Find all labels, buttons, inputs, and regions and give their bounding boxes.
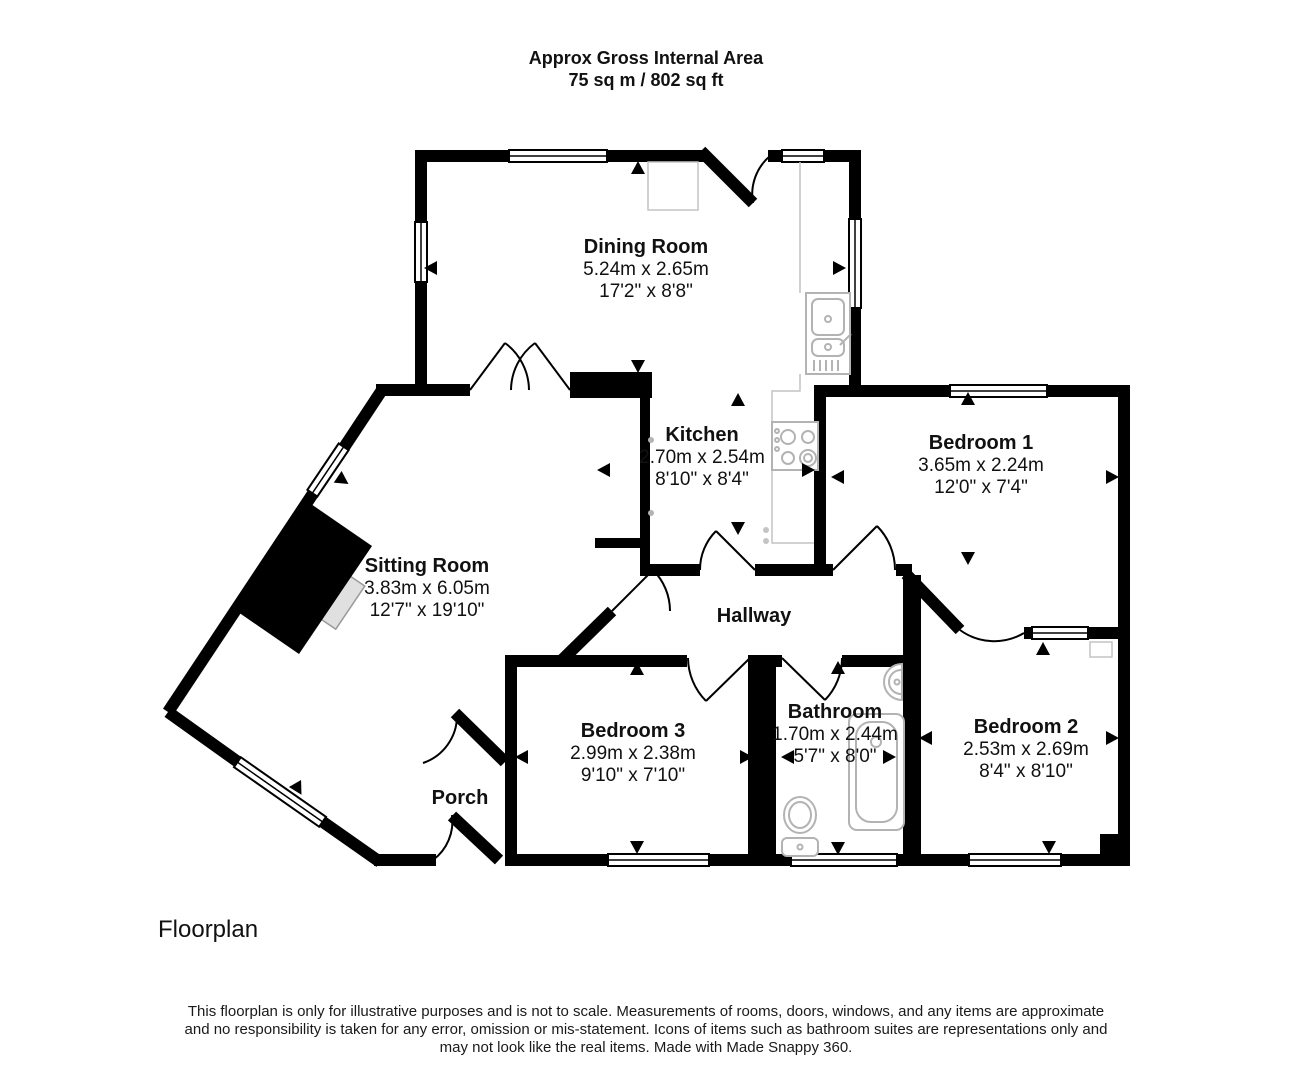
disclaimer-line-1: This floorplan is only for illustrative … — [188, 1003, 1104, 1020]
svg-text:3.65m x 2.24m: 3.65m x 2.24m — [918, 455, 1044, 476]
fridge-icon — [648, 162, 698, 210]
window — [415, 222, 427, 282]
floorplan-canvas: Approx Gross Internal Area 75 sq m / 802… — [0, 0, 1293, 1080]
window — [782, 150, 824, 162]
svg-text:Bedroom 1: Bedroom 1 — [929, 432, 1033, 454]
page-title-line1: Approx Gross Internal Area — [529, 48, 764, 68]
svg-text:Kitchen: Kitchen — [665, 424, 738, 446]
svg-text:Hallway: Hallway — [717, 605, 792, 627]
floorplan-page: Approx Gross Internal Area 75 sq m / 802… — [0, 0, 1293, 1080]
room-label-hallway: Hallway — [717, 605, 792, 627]
svg-text:Dining Room: Dining Room — [584, 236, 708, 258]
svg-text:3.83m x 6.05m: 3.83m x 6.05m — [364, 578, 490, 599]
room-label-kitchen: Kitchen 2.70m x 2.54m 8'10" x 8'4" — [639, 424, 765, 490]
toilet-icon — [782, 797, 818, 856]
window — [234, 757, 326, 826]
window — [307, 443, 348, 496]
svg-text:2.70m x 2.54m: 2.70m x 2.54m — [639, 447, 765, 468]
kitchen-sink-icon — [806, 293, 851, 374]
svg-text:Bedroom 2: Bedroom 2 — [974, 716, 1078, 738]
window — [969, 854, 1061, 866]
svg-text:17'2" x 8'8": 17'2" x 8'8" — [599, 281, 693, 302]
svg-text:Sitting Room: Sitting Room — [365, 555, 489, 577]
svg-text:2.53m x 2.69m: 2.53m x 2.69m — [963, 739, 1089, 760]
svg-text:12'7" x 19'10": 12'7" x 19'10" — [370, 600, 485, 621]
svg-text:5.24m x 2.65m: 5.24m x 2.65m — [583, 259, 709, 280]
window — [1032, 627, 1088, 639]
room-label-bedroom-2: Bedroom 2 2.53m x 2.69m 8'4" x 8'10" — [963, 716, 1089, 782]
svg-text:8'4" x 8'10": 8'4" x 8'10" — [979, 761, 1073, 782]
disclaimer-line-2: and no responsibility is taken for any e… — [185, 1021, 1108, 1038]
svg-text:Bedroom 3: Bedroom 3 — [581, 720, 685, 742]
window — [509, 150, 607, 162]
basin-icon — [884, 664, 902, 700]
svg-text:2.99m x 2.38m: 2.99m x 2.38m — [570, 743, 696, 764]
window — [608, 854, 709, 866]
svg-text:12'0" x 7'4": 12'0" x 7'4" — [934, 477, 1028, 498]
svg-text:5'7" x 8'0": 5'7" x 8'0" — [793, 746, 876, 767]
room-label-porch: Porch — [432, 787, 489, 809]
window — [950, 385, 1047, 397]
svg-text:Porch: Porch — [432, 787, 489, 809]
room-label-sitting-room: Sitting Room 3.83m x 6.05m 12'7" x 19'10… — [364, 555, 490, 621]
room-label-dining-room: Dining Room 5.24m x 2.65m 17'2" x 8'8" — [583, 236, 709, 302]
svg-text:8'10" x 8'4": 8'10" x 8'4" — [655, 469, 749, 490]
room-label-bedroom-3: Bedroom 3 2.99m x 2.38m 9'10" x 7'10" — [570, 720, 696, 786]
hob-icon — [772, 422, 818, 470]
wall-notch — [1100, 834, 1130, 866]
radiator-icon — [1090, 642, 1112, 657]
page-title-line2: 75 sq m / 802 sq ft — [568, 70, 723, 90]
disclaimer-line-3: may not look like the real items. Made w… — [440, 1039, 853, 1056]
floorplan-caption: Floorplan — [158, 916, 258, 943]
room-label-bedroom-1: Bedroom 1 3.65m x 2.24m 12'0" x 7'4" — [918, 432, 1044, 498]
svg-text:Bathroom: Bathroom — [788, 701, 882, 723]
svg-text:1.70m x 2.44m: 1.70m x 2.44m — [772, 724, 898, 745]
svg-text:9'10" x 7'10": 9'10" x 7'10" — [581, 765, 685, 786]
